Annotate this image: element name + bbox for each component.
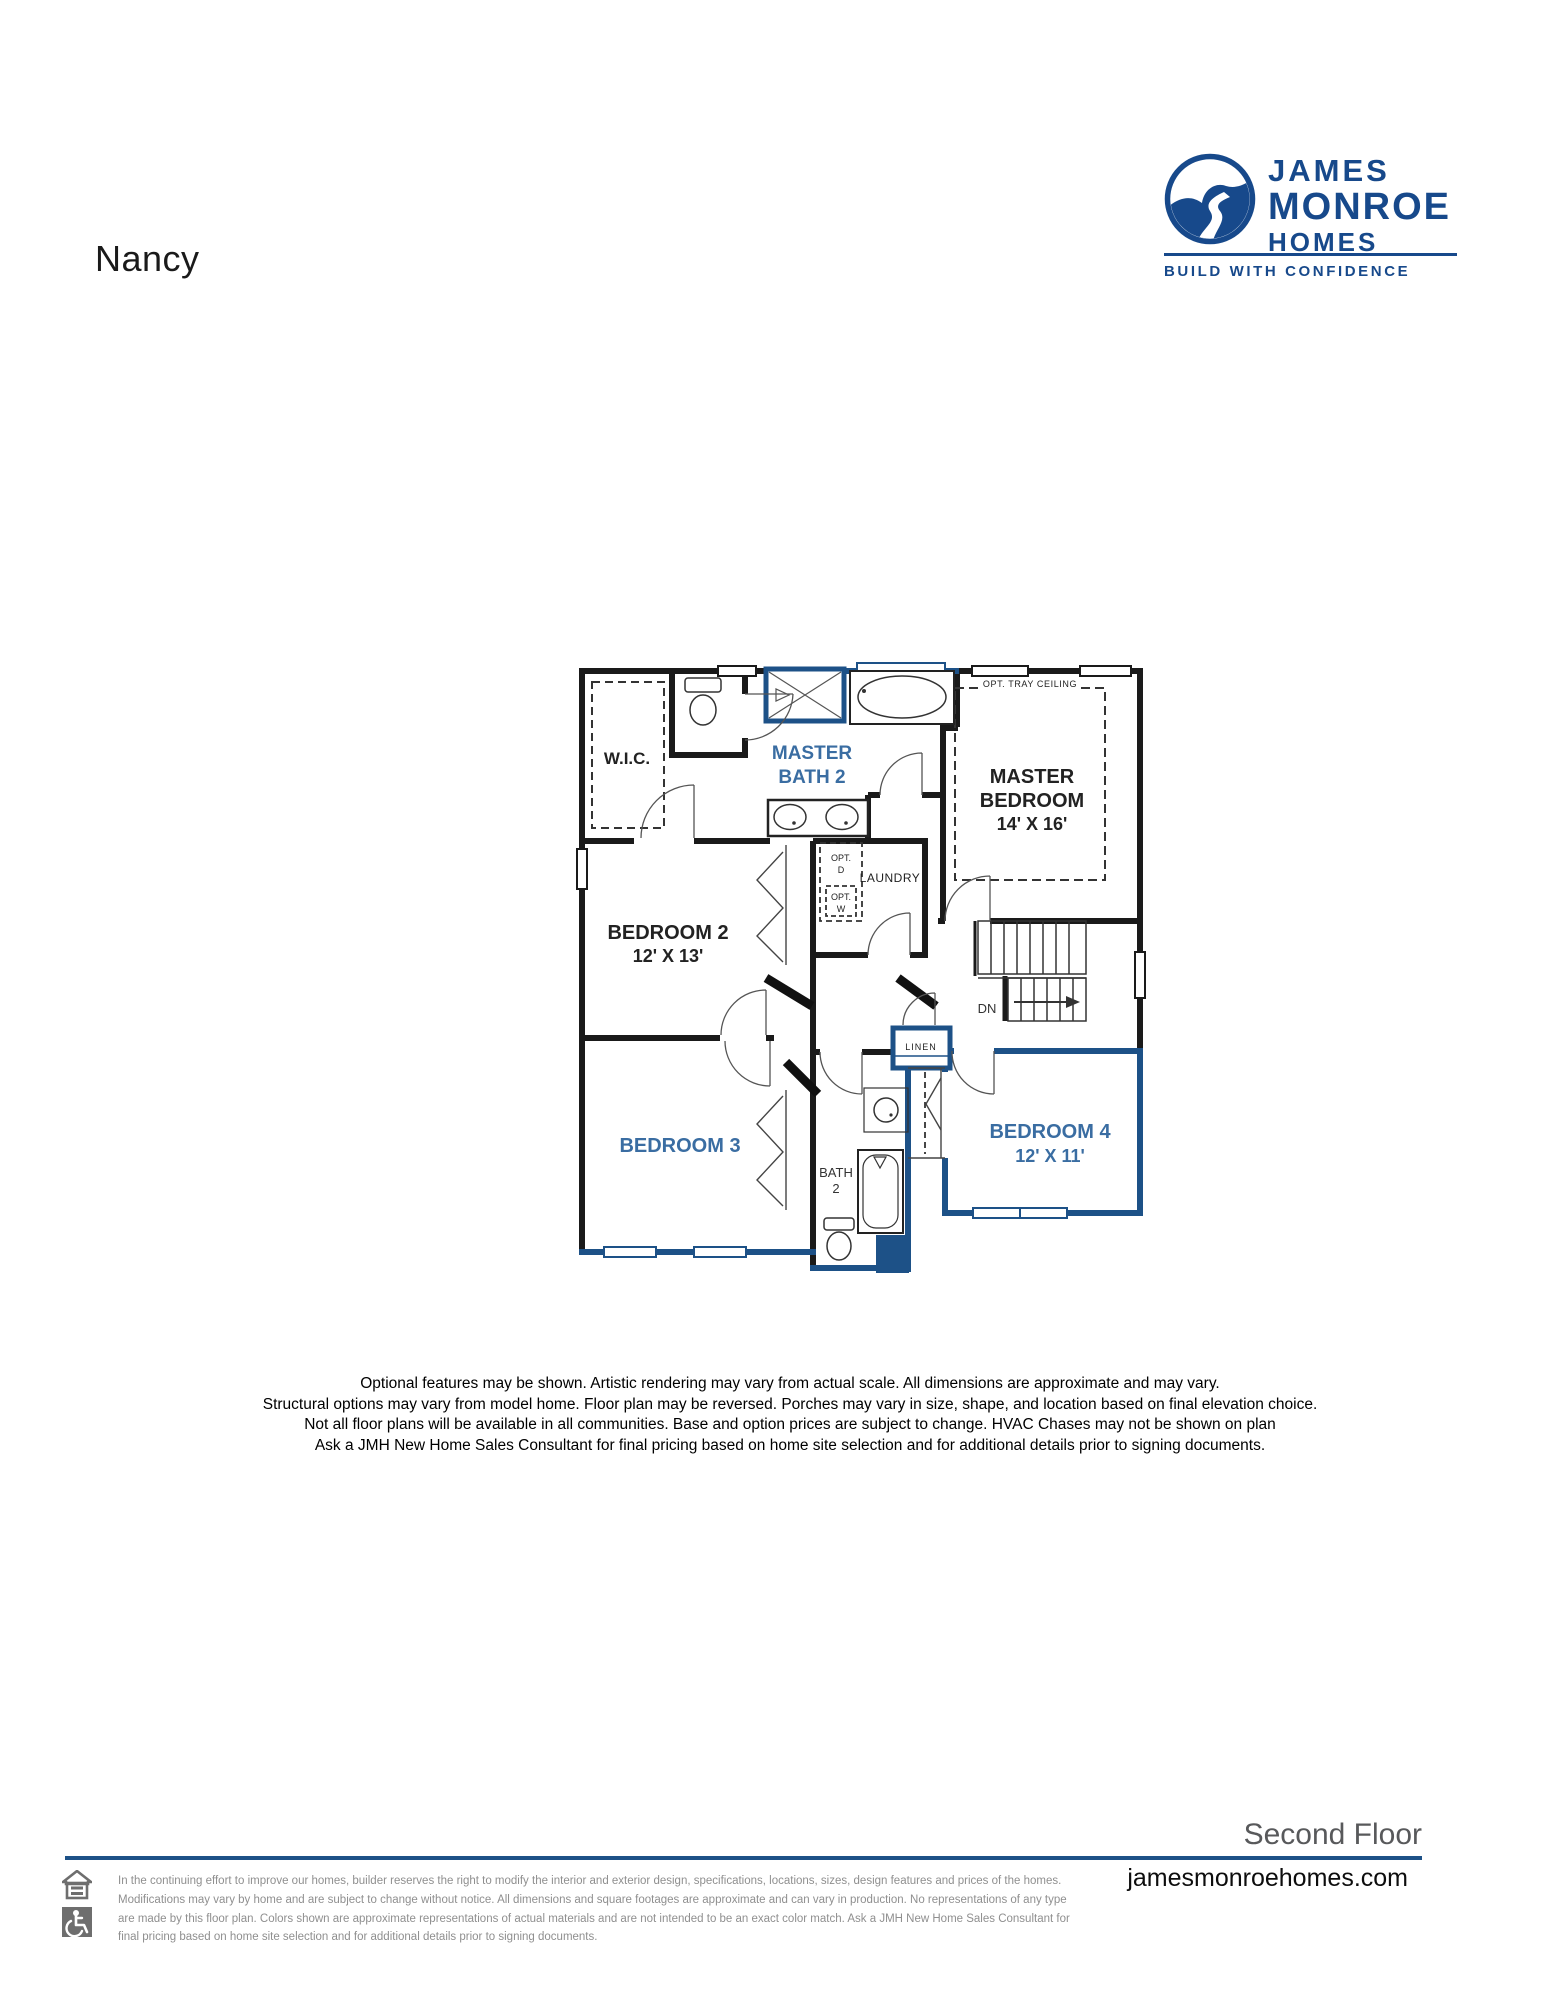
disclaimer-line: Not all floor plans will be available in…: [122, 1415, 1458, 1436]
sink-fixture-bath2: [864, 1088, 908, 1132]
door-bedroom4: [952, 1051, 994, 1094]
logo-line-homes: HOMES: [1268, 229, 1451, 255]
room-label-master-bath-1: MASTER: [772, 743, 853, 764]
shower-fixture: [766, 669, 844, 721]
room-dims-bedroom4: 12' X 11': [1015, 1146, 1085, 1166]
room-label-bedroom4: BEDROOM 4: [989, 1121, 1111, 1143]
fine-print-line: are made by this floor plan. Colors show…: [118, 1910, 918, 1929]
floor-label: Second Floor: [1022, 1818, 1422, 1852]
logo-divider: [1164, 253, 1457, 256]
room-label-bedroom3: BEDROOM 3: [619, 1135, 740, 1157]
room-label-linen: LINEN: [905, 1042, 937, 1052]
floor-plan-drawing: OPT. TRAY CEILING W.I.C. MASTER BATH 2 M…: [570, 655, 1155, 1315]
label-opt-washer-2: W: [837, 904, 846, 914]
accessibility-icon: [62, 1907, 92, 1937]
room-label-master-bedroom-2: BEDROOM: [980, 790, 1084, 812]
door-laundry: [868, 913, 910, 955]
door-bedroom3: [725, 1041, 770, 1086]
wall-chase-block: [876, 1235, 909, 1273]
fine-print-line: In the continuing effort to improve our …: [118, 1872, 918, 1891]
door-bedroom2: [721, 990, 766, 1035]
double-vanity-fixture: [768, 800, 868, 836]
website-text: jamesmonroehomes.com: [1008, 1864, 1408, 1893]
door-wic: [641, 785, 694, 838]
room-label-master-bedroom-1: MASTER: [990, 766, 1075, 788]
disclaimer-block: Optional features may be shown. Artistic…: [122, 1374, 1458, 1456]
door-master-bedroom: [945, 876, 990, 921]
room-label-master-bath-2: BATH 2: [778, 767, 845, 788]
toilet-fixture-bath2: [824, 1218, 854, 1260]
disclaimer-line: Optional features may be shown. Artistic…: [122, 1374, 1458, 1395]
label-opt-washer-1: OPT.: [831, 892, 851, 902]
fine-print-line: Modifications may vary by home and are s…: [118, 1891, 918, 1910]
label-opt-dryer-1: OPT.: [831, 853, 851, 863]
disclaimer-line: Structural options may vary from model h…: [122, 1395, 1458, 1416]
fine-print-line: final pricing based on home site selecti…: [118, 1928, 918, 1947]
logo-line-james: JAMES: [1268, 155, 1451, 186]
tray-ceiling-label: OPT. TRAY CEILING: [983, 679, 1077, 689]
tub-fixture-bath2: [858, 1150, 903, 1233]
logo-line-monroe: MONROE: [1268, 188, 1451, 226]
door-master-bath: [880, 753, 922, 795]
disclaimer-line: Ask a JMH New Home Sales Consultant for …: [122, 1436, 1458, 1457]
bathtub-fixture-master: [850, 671, 954, 724]
room-label-wic: W.I.C.: [604, 749, 650, 768]
footer-icons: [62, 1870, 96, 1942]
flyer-page: Nancy JAMES MONROE HOMES BUILD WITH CONF…: [0, 0, 1545, 2000]
equal-housing-icon: [62, 1870, 92, 1900]
door-bath2: [820, 1052, 862, 1094]
label-opt-dryer-2: D: [838, 865, 845, 875]
logo-wordmark: JAMES MONROE HOMES: [1268, 155, 1451, 255]
label-stairs-down: DN: [978, 1001, 997, 1016]
logo-tagline: BUILD WITH CONFIDENCE: [1164, 263, 1410, 280]
footer-divider: [65, 1856, 1422, 1860]
plan-name-title: Nancy: [95, 238, 200, 280]
river-landscape-icon: [1163, 152, 1257, 246]
toilet-fixture-master: [685, 678, 721, 725]
room-label-bath2-2: 2: [832, 1181, 839, 1196]
room-label-laundry: LAUNDRY: [860, 871, 921, 885]
room-dims-master-bedroom: 14' X 16': [997, 814, 1068, 834]
fine-print-block: In the continuing effort to improve our …: [118, 1872, 918, 1947]
room-dims-bedroom2: 12' X 13': [633, 946, 704, 966]
room-label-bath2-1: BATH: [819, 1165, 853, 1180]
room-label-bedroom2: BEDROOM 2: [607, 922, 728, 944]
